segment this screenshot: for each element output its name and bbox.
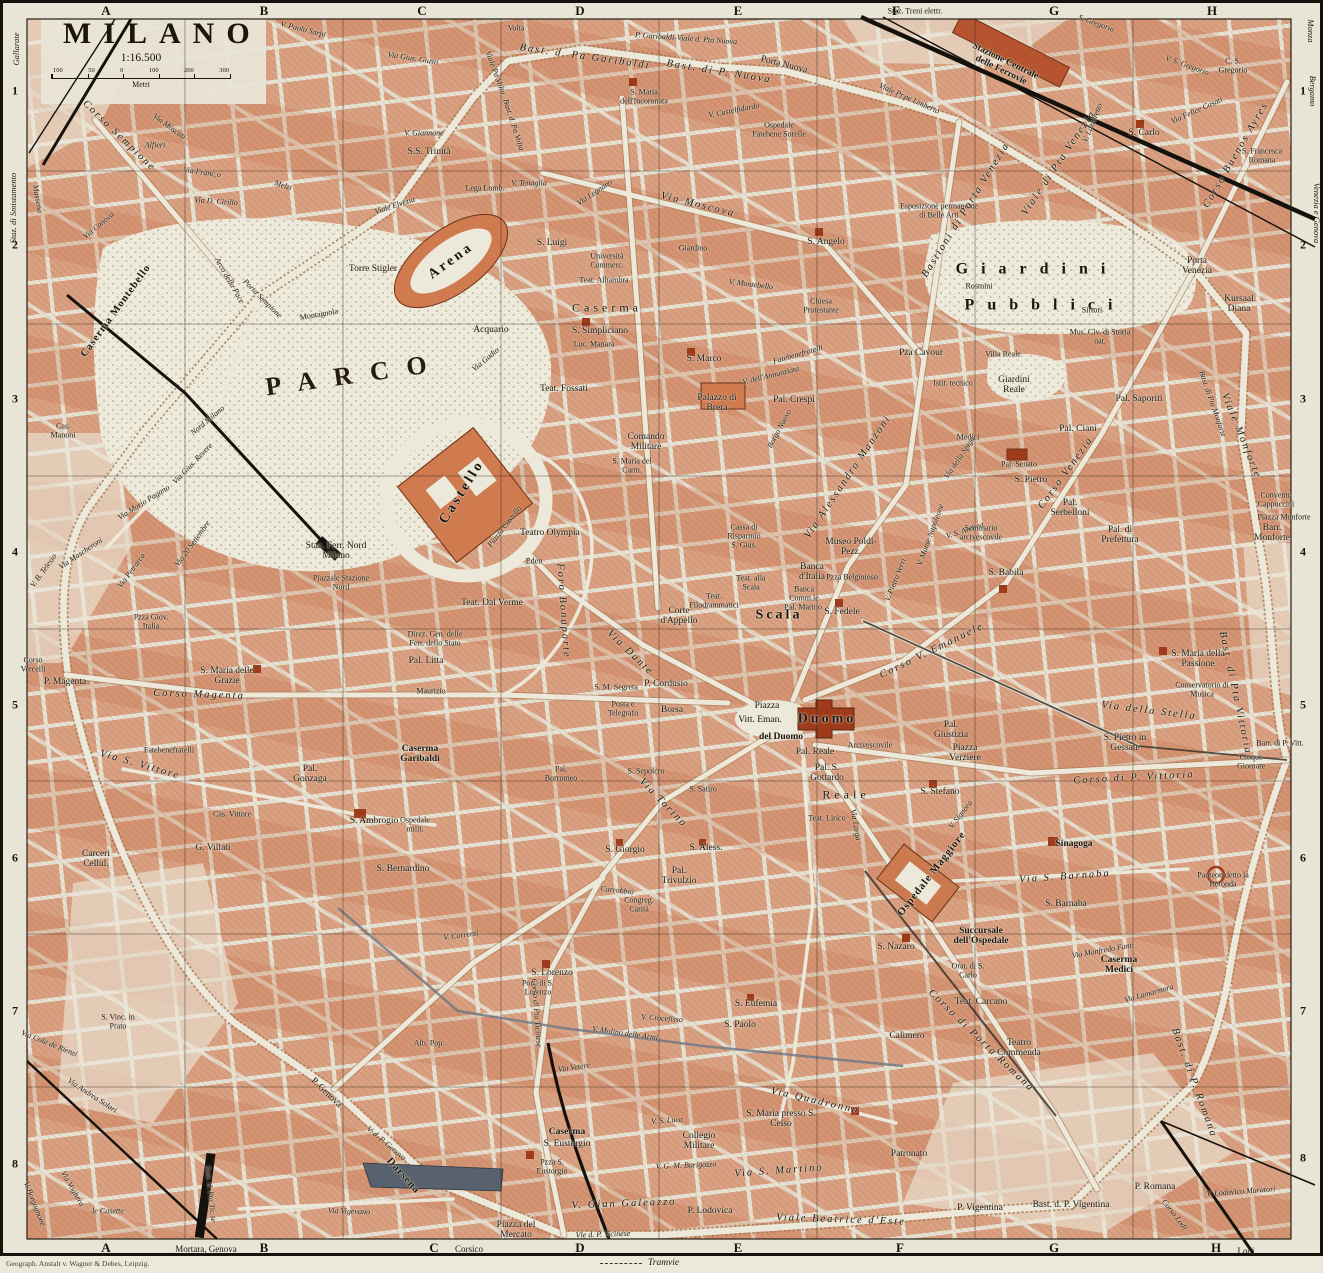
grid-row-1-right: 1 xyxy=(1300,84,1306,99)
grid-col-c-top: C xyxy=(417,3,426,19)
scale-tick: 50 xyxy=(88,67,95,74)
edge-label-corsico: Corsico xyxy=(455,1244,483,1254)
map-title: MILANO xyxy=(51,17,231,51)
grid-col-e-bottom: E xyxy=(734,1240,743,1256)
scale-tick: 300 xyxy=(219,67,229,74)
scale-tick: 0 xyxy=(120,67,123,74)
palazzo-senato-building xyxy=(1007,449,1027,460)
grid-col-d-top: D xyxy=(575,3,584,19)
cartographer-credit: Geograph. Anstalt v. Wagner & Debes, Lei… xyxy=(6,1259,149,1268)
duomo-building xyxy=(798,700,854,738)
edge-label-lodi: Lodi xyxy=(1238,1246,1255,1256)
grid-row-6-right: 6 xyxy=(1300,851,1306,866)
grid-row-3-right: 3 xyxy=(1300,392,1306,407)
scale-tick: 200 xyxy=(184,67,194,74)
grid-col-h-bottom: H xyxy=(1211,1240,1221,1256)
brera-building xyxy=(701,383,745,409)
tram-line-symbol xyxy=(600,1263,642,1264)
water-layer xyxy=(338,908,903,1191)
map-page: MILANO 1:16.500 100 50 0 100 200 300 Met… xyxy=(0,0,1323,1273)
grid-col-f-top: F xyxy=(892,3,900,19)
naviglio-canal xyxy=(338,908,903,1066)
map-frame: MILANO 1:16.500 100 50 0 100 200 300 Met… xyxy=(0,0,1323,1256)
buildings-layer xyxy=(253,13,1224,1159)
grid-col-e-top: E xyxy=(734,3,743,19)
edge-label-smistamento: Staz. di Smistamento xyxy=(8,173,18,244)
grid-col-a-bottom: A xyxy=(101,1240,110,1256)
grid-row-8-left: 8 xyxy=(12,1157,18,1172)
bottom-strip: Geograph. Anstalt v. Wagner & Debes, Lei… xyxy=(0,1257,1323,1273)
grid-row-7-right: 7 xyxy=(1300,1004,1306,1019)
grid-row-1-left: 1 xyxy=(12,84,18,99)
edge-label-mortara-genova: Mortara, Genova xyxy=(175,1244,236,1254)
edge-label-bergamo: Bergamo xyxy=(1308,76,1318,107)
ospedale-maggiore-building xyxy=(877,844,959,922)
grid-row-5-left: 5 xyxy=(12,698,18,713)
grid-col-d-bottom: D xyxy=(575,1240,584,1256)
rotonda-building xyxy=(1208,867,1224,883)
scale-tick: 100 xyxy=(149,67,159,74)
tram-legend: Tramvie xyxy=(600,1258,679,1268)
grid-col-g-bottom: G xyxy=(1049,1240,1059,1256)
map-artwork xyxy=(3,3,1320,1253)
edge-label-venezia-genova: Venezia e Genova xyxy=(1312,183,1322,243)
grid-lines xyxy=(27,19,1291,1239)
grid-col-f-bottom: F xyxy=(896,1240,904,1256)
map-scale-ratio: 1:16.500 xyxy=(51,52,231,64)
grid-col-b-bottom: B xyxy=(260,1240,269,1256)
grid-row-6-left: 6 xyxy=(12,851,18,866)
grid-row-2-right: 2 xyxy=(1300,238,1306,253)
grid-row-8-right: 8 xyxy=(1300,1151,1306,1166)
edge-label-monza: Monza xyxy=(1306,19,1316,42)
scale-bar-rule xyxy=(51,74,231,79)
grid-row-4-left: 4 xyxy=(12,545,18,560)
grid-row-7-left: 7 xyxy=(12,1004,18,1019)
edge-label-gallarate: Gallarate xyxy=(11,32,21,65)
scale-bar: 100 50 0 100 200 300 Metri xyxy=(51,67,231,89)
grid-row-5-right: 5 xyxy=(1300,698,1306,713)
grid-col-c-bottom: C xyxy=(429,1240,438,1256)
grid-col-h-top: H xyxy=(1207,3,1217,19)
map-title-block: MILANO 1:16.500 100 50 0 100 200 300 Met… xyxy=(51,17,231,89)
scale-tick: 100 xyxy=(53,67,63,74)
tram-legend-label: Tramvie xyxy=(648,1258,679,1268)
darsena xyxy=(363,1163,503,1191)
scale-bar-ticks: 100 50 0 100 200 300 xyxy=(51,67,231,74)
grid-row-3-left: 3 xyxy=(12,392,18,407)
open-land-patches xyxy=(27,19,1313,1233)
scale-bar-unit: Metri xyxy=(51,80,231,89)
grid-row-4-right: 4 xyxy=(1300,545,1306,560)
grid-col-g-top: G xyxy=(1049,3,1059,19)
